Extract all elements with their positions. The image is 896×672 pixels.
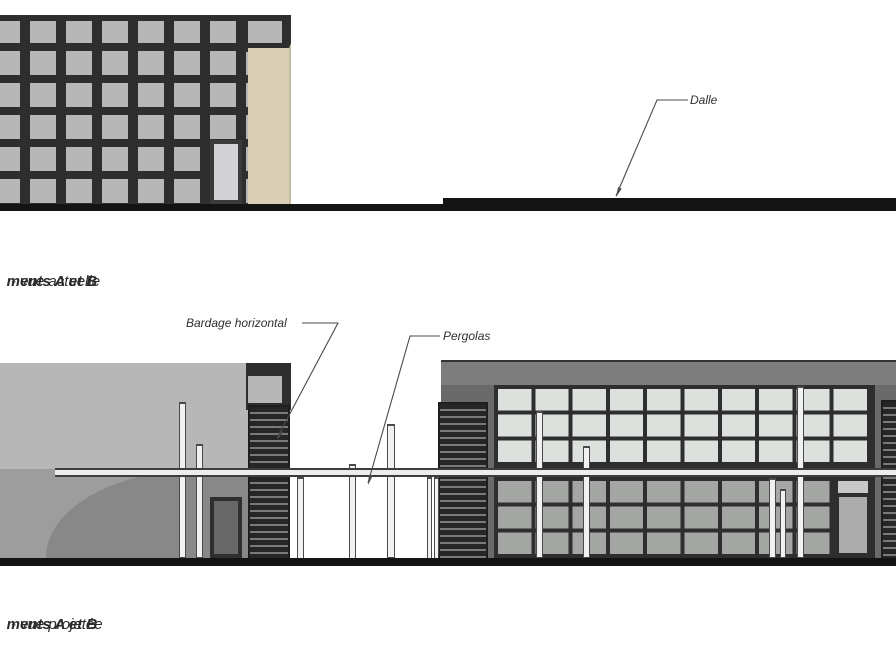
pergola-post <box>297 477 304 559</box>
label-pergolas: Pergolas <box>443 329 490 343</box>
arrowhead-dalle <box>616 187 622 197</box>
pergola-post <box>769 478 776 558</box>
caption-vue-projetee: ments A et B - vue projetée <box>0 599 7 650</box>
bardage-cladding-building-b-left <box>438 402 488 560</box>
label-dalle: Dalle <box>690 93 717 107</box>
elevation-drawing-sheet: ments A et B - vue actuelle ments A et B… <box>0 0 896 672</box>
bardage-cladding-building-a <box>248 405 290 560</box>
door-building-a-actual <box>210 140 242 204</box>
pergola-post <box>427 477 432 559</box>
pergola-post <box>349 464 356 559</box>
glazing-panes-upper <box>498 389 871 466</box>
pergola-post <box>434 477 439 559</box>
pergola-beam <box>55 468 896 477</box>
pergola-post <box>583 446 590 558</box>
building-a-toprow-extension-projected <box>246 363 291 410</box>
door-building-b <box>833 477 873 558</box>
pergola-post <box>536 411 543 558</box>
ground-line-projected <box>0 558 896 566</box>
caption-view-type: - vue projetée <box>7 616 103 633</box>
label-bardage-horizontal: Bardage horizontal <box>186 316 287 330</box>
building-b-window-band-lower <box>494 477 875 558</box>
door-b-transom <box>838 481 868 493</box>
bardage-cladding-building-b-right <box>881 400 896 560</box>
pergola-post <box>179 402 186 558</box>
pergola-post <box>387 424 395 558</box>
building-b-parapet <box>441 362 896 385</box>
pergola-post <box>196 444 203 558</box>
door-b-panel <box>839 497 867 553</box>
glazing-panes-lower <box>498 481 871 554</box>
pergola-post <box>780 489 786 558</box>
beige-pilaster <box>248 43 291 204</box>
ground-line-actual <box>0 204 896 211</box>
caption-view-type: - vue actuelle <box>7 273 100 290</box>
building-b-window-band-upper <box>494 385 875 470</box>
caption-vue-actuelle: ments A et B - vue actuelle <box>0 256 7 307</box>
